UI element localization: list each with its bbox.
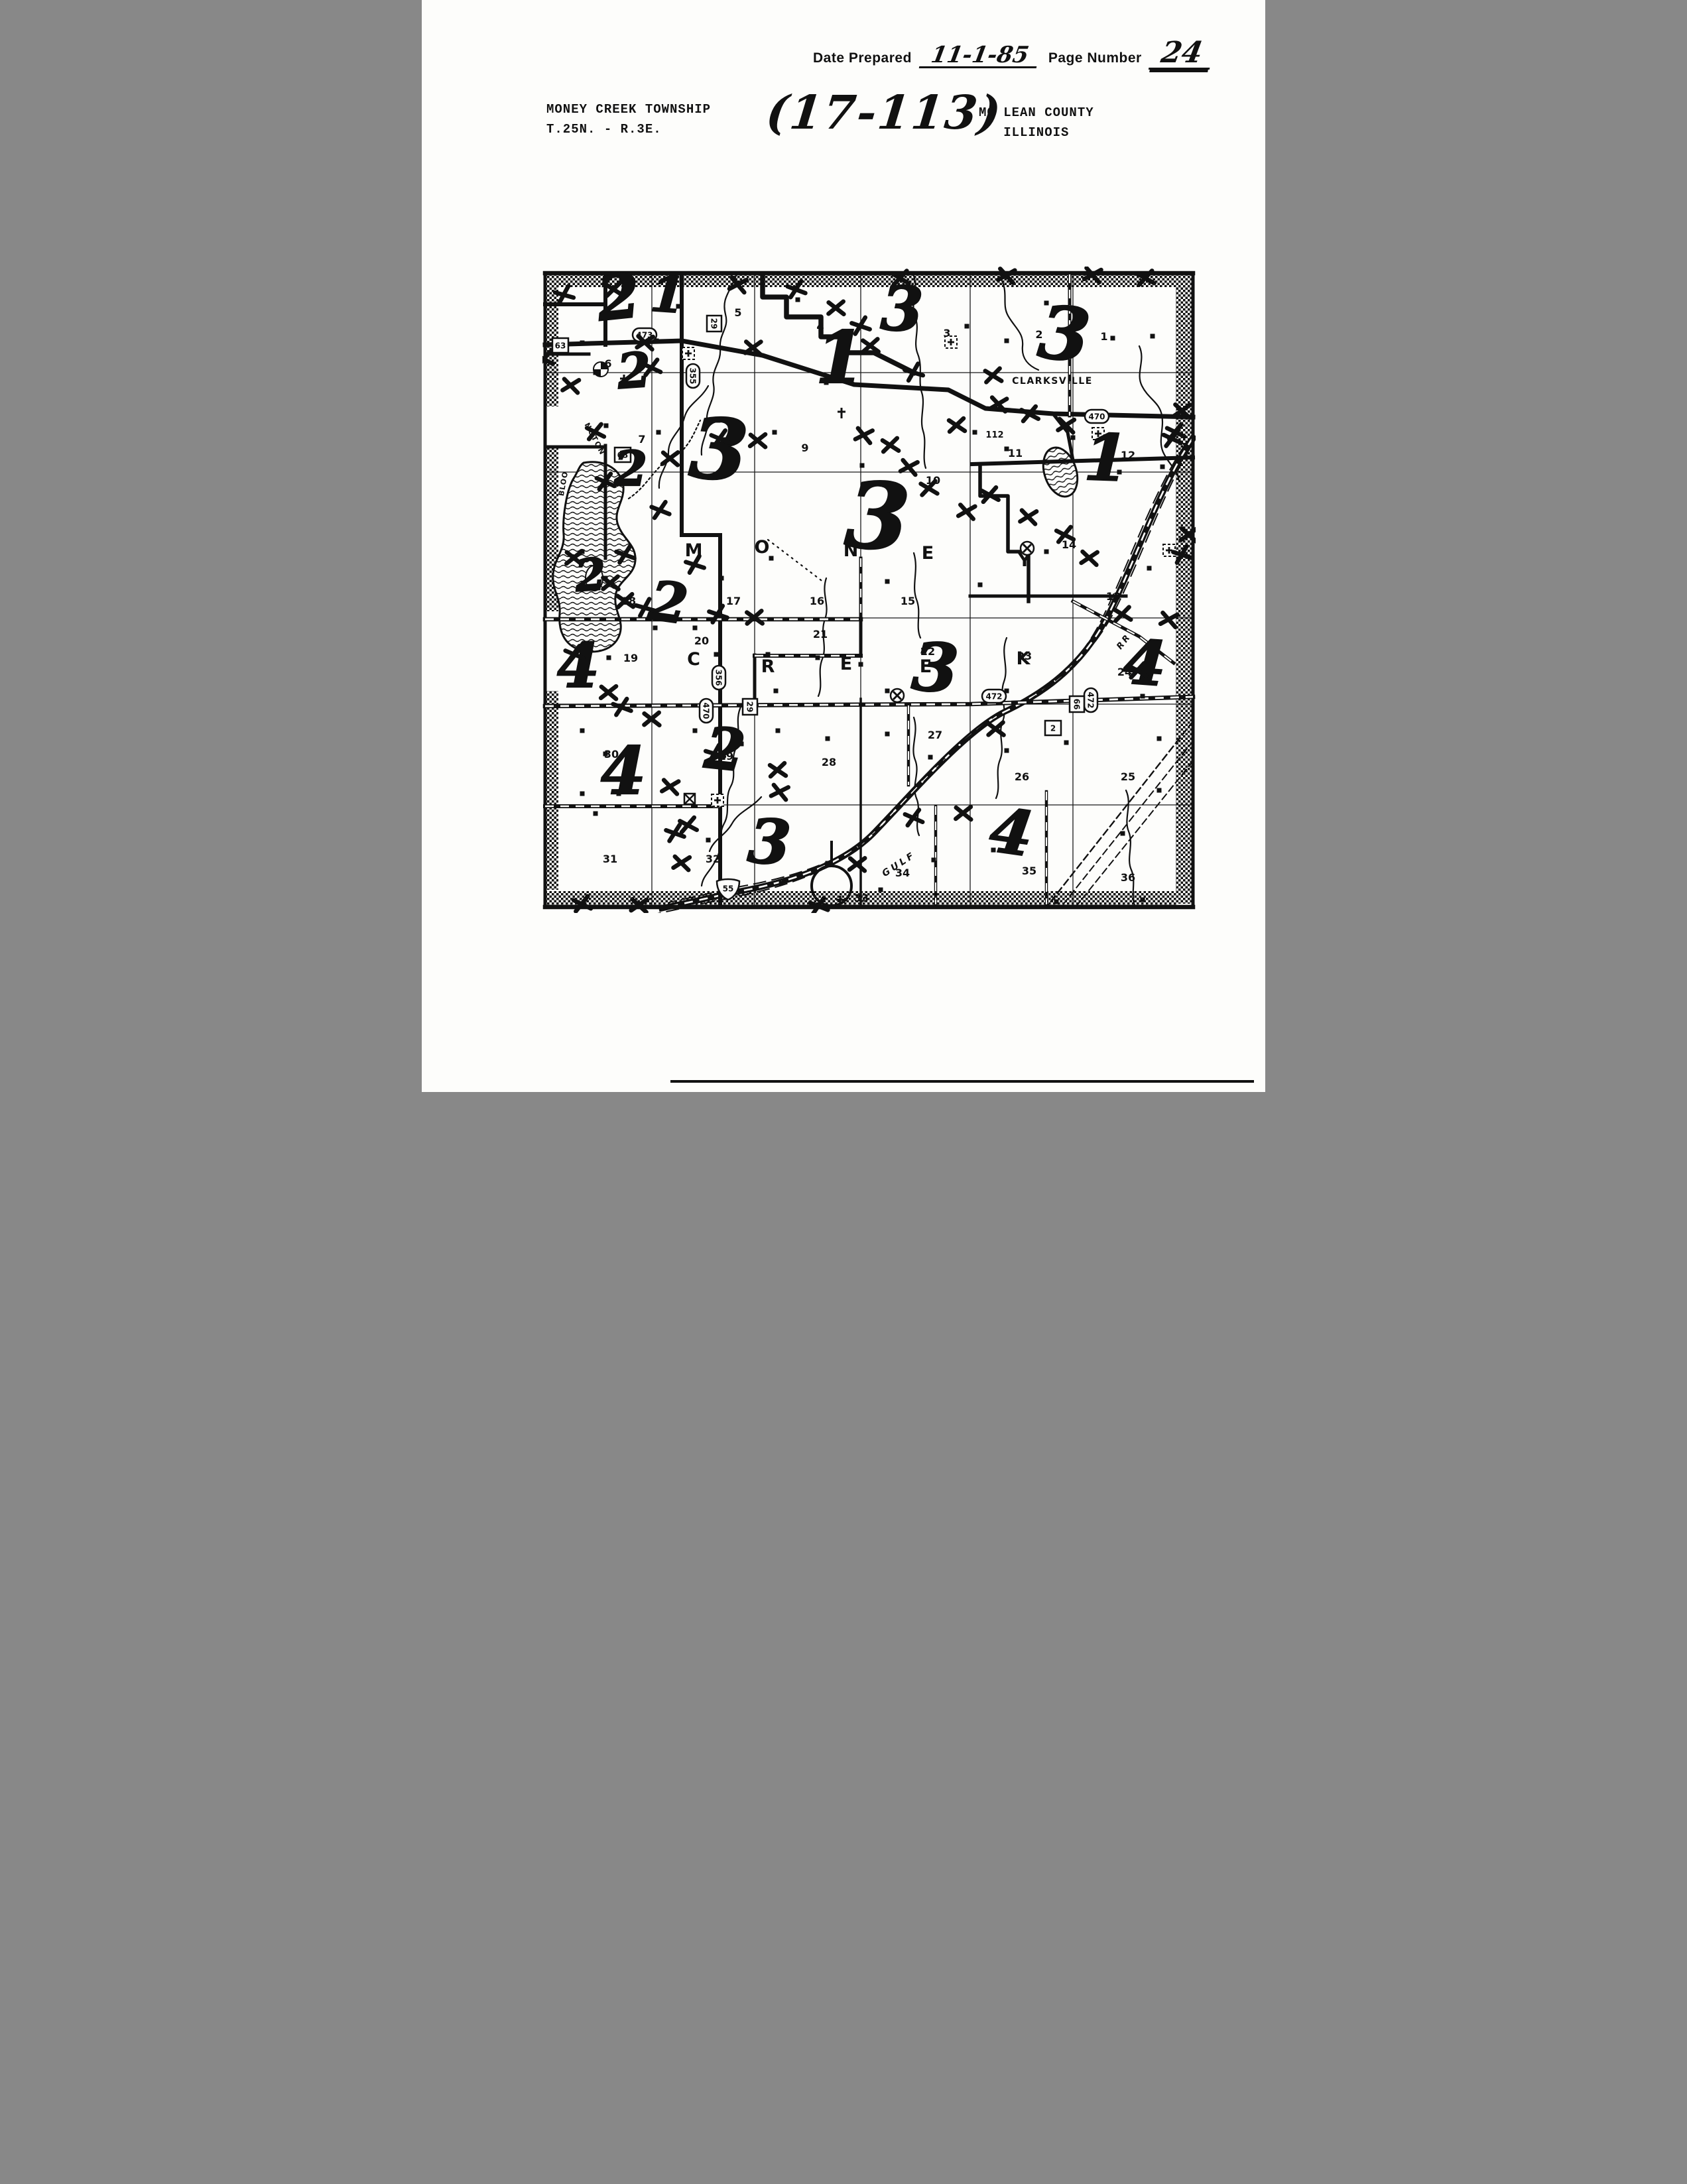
section-number: 31 (603, 853, 617, 865)
x-mark (661, 778, 680, 795)
section-number: 17 (726, 595, 741, 607)
shield-number: 29 (710, 318, 719, 330)
x-mark (985, 369, 1002, 383)
x-mark (988, 721, 1005, 735)
section-number: 20 (694, 635, 709, 647)
building-square (594, 812, 598, 816)
handwritten-district-number: 3 (879, 273, 924, 345)
x-mark (770, 763, 786, 776)
building-square (932, 858, 936, 863)
scan-artifact-line (670, 1080, 1254, 1083)
building-square (1005, 749, 1009, 753)
shield-number: 29 (745, 701, 755, 713)
page-number-value: 24 (1149, 38, 1215, 70)
road (972, 457, 1193, 464)
building-square (773, 430, 777, 435)
county-name: MC LEAN COUNTY (979, 103, 1094, 123)
building-square (719, 576, 724, 581)
township-name-letter: R (761, 656, 775, 677)
section-number: 25 (1121, 770, 1135, 783)
x-mark (651, 502, 670, 518)
state-name: ILLINOIS (979, 123, 1094, 143)
map-svg: 6543217891011121817161514131920212223243… (542, 267, 1196, 913)
handwritten-district-number: 4 (601, 733, 646, 810)
route-shield-29: 29 (707, 316, 721, 332)
route-shield-2: 2 (1045, 721, 1061, 735)
quartered-symbol (594, 362, 608, 377)
township-name-letter: E (840, 654, 852, 674)
section-number: 1 (1100, 330, 1107, 343)
building-square (1054, 900, 1059, 904)
rail-spur (1076, 761, 1193, 907)
building-square (604, 424, 609, 428)
route-shield-355: 355 (686, 364, 700, 388)
building-square (1044, 550, 1049, 554)
x-mark (883, 438, 899, 452)
x-mark (849, 857, 866, 872)
g-bignums: 2131323213224342434 (557, 267, 1168, 879)
handwritten-district-number: 1 (649, 267, 686, 325)
handwritten-district-number: 3 (1034, 289, 1094, 379)
township-range: T.25N. - R.3E. (546, 119, 711, 139)
creek-dotted (768, 540, 824, 582)
x-mark (1019, 509, 1038, 525)
building-square (693, 626, 698, 631)
page-number-label: Page Number (1048, 50, 1142, 66)
rail-spur (1046, 721, 1193, 907)
x-mark (905, 810, 922, 825)
handwritten-district-number: 4 (985, 794, 1037, 871)
handwritten-district-number: 3 (746, 805, 793, 879)
building-square (1121, 831, 1125, 836)
map-code: (17-113) (764, 85, 1005, 140)
section-number: 32 (706, 853, 720, 865)
x-mark (662, 451, 679, 466)
route-shield-63: 63 (552, 338, 568, 353)
building-square (879, 888, 883, 892)
handwritten-district-number: 3 (686, 398, 751, 501)
pond (1037, 443, 1083, 501)
route-shield-29: 29 (743, 699, 757, 715)
building-square (1071, 436, 1076, 440)
building-square (580, 729, 585, 733)
x-mark (680, 818, 697, 832)
cross-symbol (838, 408, 845, 418)
building-square (1157, 788, 1162, 793)
x-mark (828, 300, 844, 315)
building-square (1157, 737, 1162, 741)
x-mark (771, 783, 790, 800)
x-mark (562, 377, 580, 394)
township-name-letter: O (755, 537, 770, 558)
building-square (580, 792, 585, 796)
x-mark (600, 685, 617, 699)
township-name-letter: C (687, 649, 700, 670)
building-square (796, 298, 800, 302)
handwritten-district-number: 2 (593, 267, 643, 335)
building-square (693, 729, 698, 733)
shield-number: 66 (1072, 699, 1082, 710)
township-name: MONEY CREEK TOWNSHIP (546, 99, 711, 119)
section-number: 21 (813, 628, 828, 640)
building-square (656, 430, 661, 435)
building-square (816, 656, 820, 660)
map-label-112: 112 (985, 430, 1003, 440)
circle-x-symbol (891, 689, 904, 702)
page-header: Date Prepared 11-1-85 Page Number 24 (813, 38, 1224, 70)
building-square (1141, 898, 1145, 902)
building-square (766, 652, 771, 657)
building-square (706, 838, 711, 843)
township-map: 6543217891011121817161514131920212223243… (542, 267, 1196, 913)
creek (1126, 790, 1135, 907)
school-symbol (684, 794, 695, 804)
building-square (779, 881, 784, 886)
x-mark (855, 426, 874, 444)
building-square (885, 689, 890, 694)
section-number: 28 (822, 756, 836, 768)
building-square (978, 583, 983, 587)
building-square (1005, 339, 1009, 343)
building-square (973, 430, 977, 435)
township-name-letter: E (922, 543, 934, 564)
x-mark (955, 806, 972, 820)
scanned-plat-page: Date Prepared 11-1-85 Page Number 24 MON… (422, 0, 1265, 1092)
route-shield-356: 356 (712, 666, 725, 690)
building-square (928, 755, 933, 760)
building-square (1160, 465, 1165, 469)
x-mark (749, 433, 767, 448)
date-prepared-value: 11-1-85 (919, 44, 1041, 68)
building-square (1151, 334, 1155, 339)
hatch-left-3 (546, 691, 558, 890)
route-shield-472: 472 (1084, 688, 1097, 712)
date-prepared-label: Date Prepared (813, 50, 912, 66)
boxed-cross-symbol (712, 794, 723, 806)
x-mark (1081, 550, 1099, 566)
shield-number: 472 (985, 692, 1002, 701)
section-number: 19 (623, 652, 638, 664)
shield-number: 356 (714, 669, 723, 686)
quadrant (594, 369, 601, 377)
boxed-cross-symbol (945, 336, 957, 348)
section-number: 27 (928, 729, 942, 741)
building-square (826, 737, 830, 741)
handwritten-district-number: 2 (613, 440, 647, 497)
section-number: 26 (1015, 770, 1029, 783)
township-title: MONEY CREEK TOWNSHIP T.25N. - R.3E. (546, 99, 711, 140)
building-square (774, 689, 779, 694)
creek (1000, 277, 1038, 370)
handwritten-district-number: 3 (842, 460, 913, 572)
section-number: 13 (1106, 590, 1121, 603)
building-square (1111, 336, 1115, 341)
shield-number: 472 (1086, 692, 1095, 708)
shield-number: 63 (555, 341, 566, 351)
building-square (885, 579, 890, 584)
building-square (965, 324, 969, 329)
shield-number: 355 (688, 367, 698, 384)
section-number: 33 (854, 892, 869, 904)
church-cross (838, 408, 845, 418)
building-square (826, 861, 830, 866)
section-number: 16 (810, 595, 824, 607)
hatch-right (1176, 274, 1192, 904)
section-number: 15 (901, 595, 915, 607)
building-square (776, 729, 781, 733)
x-mark (1115, 607, 1131, 621)
building-square (1064, 741, 1069, 745)
route-shield-66: 66 (1070, 696, 1084, 712)
route-shield-472: 472 (982, 690, 1006, 703)
building-square (580, 341, 585, 345)
x-mark (958, 503, 976, 519)
building-square (607, 656, 611, 660)
x-mark (673, 855, 691, 871)
section-number: 36 (1121, 871, 1135, 884)
building-square (714, 652, 719, 657)
road (980, 465, 1029, 601)
handwritten-district-number: 4 (557, 630, 599, 701)
shield-number: 55 (723, 884, 734, 894)
x-mark (949, 418, 965, 432)
section-number: 11 (1008, 447, 1023, 459)
building-square (1005, 447, 1009, 452)
section-number: 9 (801, 442, 808, 454)
shield-number: 2 (1050, 724, 1056, 733)
county-title: MC LEAN COUNTY ILLINOIS (979, 103, 1094, 143)
building-square (885, 732, 890, 737)
section-number: 5 (734, 306, 741, 319)
handwritten-district-number: 1 (1083, 420, 1130, 496)
building-square (1147, 566, 1152, 571)
circle-x-symbol (1021, 542, 1034, 555)
building-square (769, 556, 774, 561)
boxed-cross-symbol (682, 347, 694, 359)
building-square (859, 662, 863, 667)
handwritten-district-number: 3 (910, 627, 962, 709)
township-name-letter: K (1017, 648, 1031, 669)
